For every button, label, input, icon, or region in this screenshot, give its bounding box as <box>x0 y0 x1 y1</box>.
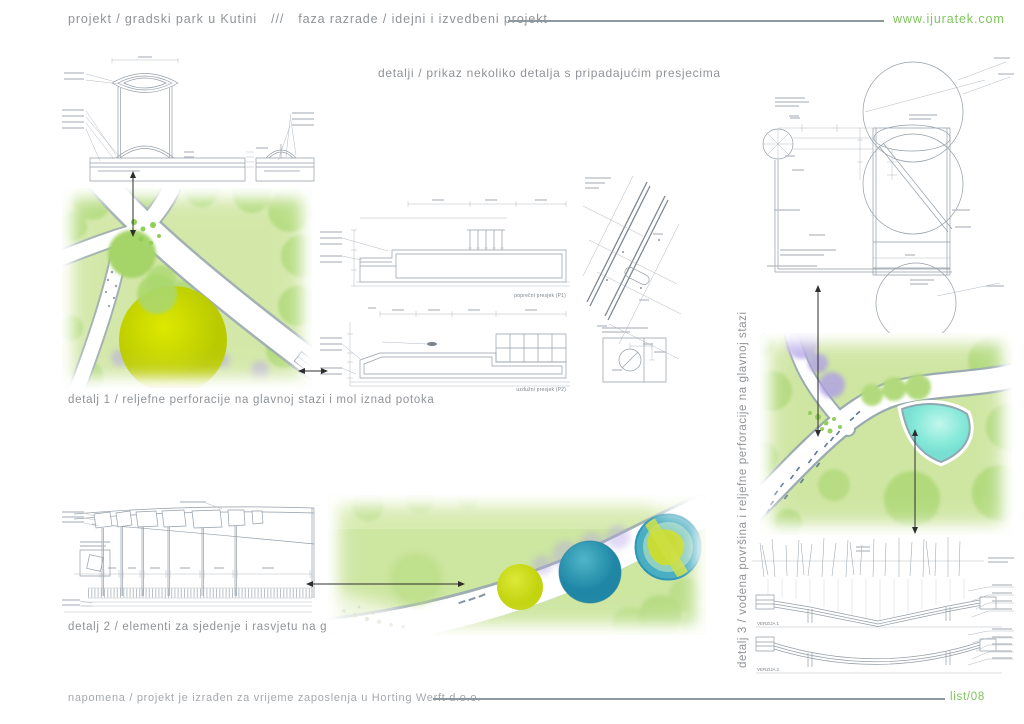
header-separator: /// <box>271 12 284 26</box>
section2-label: uzdužni presjek (P2) <box>516 387 566 392</box>
page-subtitle: detalji / prikaz nekoliko detalja s prip… <box>378 66 721 80</box>
perforation-detail-box <box>600 326 670 388</box>
water-section-versions-drawing: VERZIJA 1 VERZIJA 2 <box>752 531 1018 679</box>
website-text: www.ijuratek.com <box>893 12 1005 26</box>
deck-outline-p2 <box>360 353 566 378</box>
version2-profile <box>774 642 980 664</box>
detail1-caption: detalj 1 / reljefne perforacije na glavn… <box>68 394 435 406</box>
version2-label: VERZIJA 2 <box>757 667 780 672</box>
sheet-number: list/08 <box>950 691 985 703</box>
header-phase-text: faza razrade / idejni i izvedbeni projek… <box>298 12 548 26</box>
faded-tree-circle <box>390 553 442 605</box>
deck-outline-p1 <box>360 250 566 282</box>
footer-rule <box>433 698 945 700</box>
detail3-caption: detalj 3 / vodena površina i reljefne pe… <box>737 336 749 668</box>
header-project-text: projekt / gradski park u Kutini <box>68 12 257 26</box>
lens-shape <box>112 74 178 93</box>
detail1-cross-sections-drawing: poprečni presjek (P1) uzdužni presjek (P… <box>320 192 582 392</box>
header: projekt / gradski park u Kutini /// faza… <box>68 12 548 26</box>
version1-label: VERZIJA 1 <box>757 621 780 626</box>
header-rule <box>508 20 884 22</box>
stair-grid <box>496 334 566 362</box>
teal-circle <box>559 541 621 603</box>
plan-rendering-detail2 <box>328 495 706 635</box>
plan-rendering-detail3 <box>760 333 1012 535</box>
plant-strokes <box>760 537 960 577</box>
detail2-elevation-drawing <box>62 500 320 624</box>
post-lines <box>102 526 237 596</box>
detail3-geometry-drawing <box>742 50 1018 340</box>
right-platform <box>256 158 314 181</box>
section1-label: poprečni presjek (P1) <box>514 293 566 299</box>
left-platform <box>90 158 245 181</box>
yellow-circle <box>497 564 543 610</box>
dome-profiles <box>116 144 296 158</box>
version1-profile <box>774 600 980 627</box>
railing-posts <box>467 230 505 250</box>
footer-note: napomena / projekt je izrađen za vrijeme… <box>68 692 481 704</box>
project-sheet: projekt / gradski park u Kutini /// faza… <box>0 0 1024 724</box>
detail1-section-drawing <box>60 56 316 188</box>
plan-rendering-detail1 <box>62 188 312 388</box>
seat-blocks <box>94 510 263 528</box>
